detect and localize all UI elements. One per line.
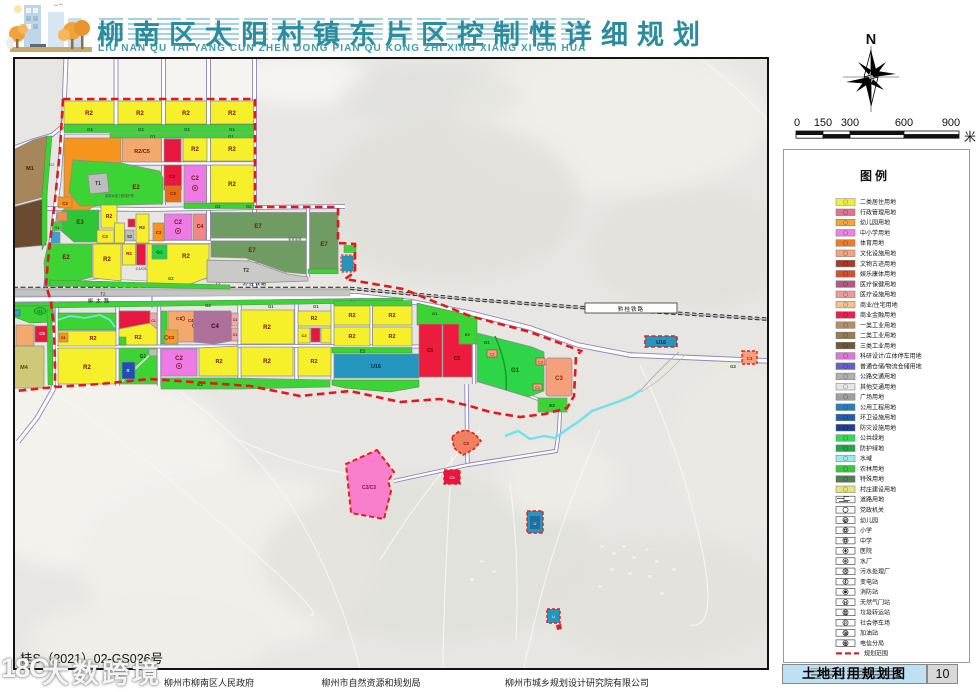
svg-text:加油站: 加油站 — [860, 629, 878, 637]
svg-text:医疗设施用地: 医疗设施用地 — [860, 291, 896, 299]
svg-text:文化设施用地: 文化设施用地 — [860, 250, 896, 258]
svg-text:农林用地: 农林用地 — [860, 465, 884, 473]
svg-text:水域: 水域 — [860, 455, 872, 463]
svg-text:防护绿地: 防护绿地 — [860, 444, 884, 452]
svg-text:广场用地: 广场用地 — [860, 393, 884, 401]
svg-text:社会停车场: 社会停车场 — [860, 619, 890, 627]
svg-text:幼儿园: 幼儿园 — [860, 516, 878, 524]
svg-text:污水处理厂: 污水处理厂 — [860, 568, 890, 576]
svg-text:医疗保健用地: 医疗保健用地 — [860, 280, 896, 288]
svg-text:公用工程用地: 公用工程用地 — [860, 403, 896, 411]
svg-text:垃圾转运站: 垃圾转运站 — [860, 609, 890, 617]
svg-text:电信分局: 电信分局 — [860, 639, 884, 647]
svg-text:H: H — [844, 600, 847, 605]
svg-text:150: 150 — [814, 117, 832, 129]
svg-text:幼: 幼 — [843, 517, 847, 524]
svg-text:公路交通用地: 公路交通用地 — [860, 373, 896, 381]
svg-text:一类工业用地: 一类工业用地 — [860, 321, 896, 329]
svg-text:二类工业用地: 二类工业用地 — [860, 332, 896, 340]
svg-text:道路用地: 道路用地 — [860, 496, 884, 504]
svg-text:防灾设施用地: 防灾设施用地 — [860, 424, 896, 432]
svg-text:P: P — [844, 620, 847, 625]
svg-text:公共绿地: 公共绿地 — [860, 434, 884, 442]
svg-text:三类工业用地: 三类工业用地 — [860, 342, 896, 350]
svg-text:党政机关: 党政机关 — [860, 506, 884, 514]
svg-text:消防站: 消防站 — [860, 588, 878, 596]
svg-text:医院: 医院 — [860, 547, 872, 555]
svg-text:体育用地: 体育用地 — [860, 239, 884, 247]
svg-text:规划范围: 规划范围 — [864, 650, 888, 658]
svg-text:N: N — [866, 32, 876, 48]
svg-text:油: 油 — [843, 630, 847, 637]
svg-text:水厂: 水厂 — [860, 557, 872, 565]
svg-text:300: 300 — [841, 117, 859, 129]
svg-text:变电站: 变电站 — [860, 578, 878, 586]
svg-text:科研设计/立体停车用地: 科研设计/立体停车用地 — [860, 352, 922, 360]
svg-text:文物古迹用地: 文物古迹用地 — [860, 260, 896, 268]
svg-text:中小学用地: 中小学用地 — [860, 229, 890, 237]
svg-text:900: 900 — [942, 117, 960, 129]
svg-text:天然气门站: 天然气门站 — [860, 598, 890, 606]
svg-text:环卫设施用地: 环卫设施用地 — [860, 414, 896, 422]
svg-text:600: 600 — [895, 117, 913, 129]
svg-text:特殊用地: 特殊用地 — [860, 475, 884, 483]
svg-text:小学: 小学 — [860, 527, 872, 535]
svg-text:村庄建设用地: 村庄建设用地 — [860, 486, 896, 494]
svg-text:普通仓储/物流仓储用地: 普通仓储/物流仓储用地 — [860, 362, 922, 370]
svg-text:行政管理用地: 行政管理用地 — [860, 209, 896, 217]
svg-text:中学: 中学 — [860, 537, 872, 545]
svg-text:商业/住宅用地: 商业/住宅用地 — [860, 301, 898, 309]
svg-text:商业金融用地: 商业金融用地 — [860, 311, 896, 319]
svg-text:其他交通用地: 其他交通用地 — [860, 383, 896, 391]
svg-text:幼儿园用地: 幼儿园用地 — [860, 219, 890, 227]
svg-text:米: 米 — [964, 130, 976, 144]
svg-text:图例: 图例 — [860, 168, 890, 183]
svg-text:娱乐康体用地: 娱乐康体用地 — [860, 270, 896, 278]
svg-text:0: 0 — [794, 117, 800, 129]
svg-text:二类居住用地: 二类居住用地 — [860, 198, 896, 206]
